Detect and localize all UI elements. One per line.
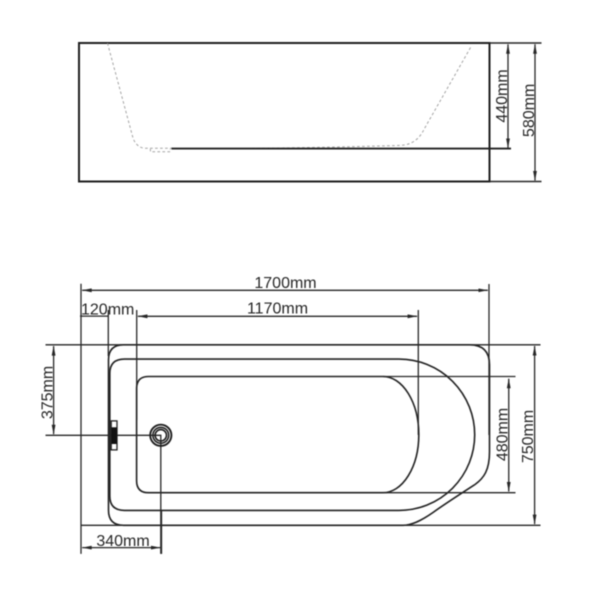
svg-text:340mm: 340mm [96, 533, 149, 550]
svg-text:750mm: 750mm [520, 410, 537, 463]
svg-text:375mm: 375mm [40, 366, 57, 419]
svg-text:580mm: 580mm [521, 84, 538, 137]
svg-text:120mm: 120mm [81, 301, 134, 318]
svg-text:440mm: 440mm [494, 69, 511, 122]
svg-text:1170mm: 1170mm [247, 301, 308, 318]
svg-text:1700mm: 1700mm [254, 275, 316, 292]
svg-text:480mm: 480mm [495, 408, 512, 461]
